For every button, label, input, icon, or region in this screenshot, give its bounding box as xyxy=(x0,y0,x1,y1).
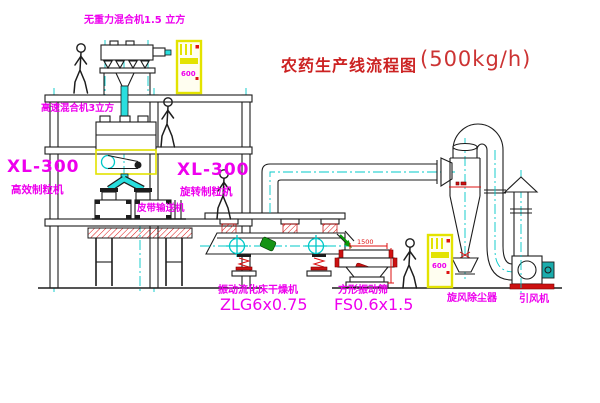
pulley-wheel xyxy=(102,156,115,169)
mixer-nozzle-tip xyxy=(165,50,171,55)
label-granulator-left-name: 高效制粒机 xyxy=(11,185,64,196)
label-granulator-left-model: XL-300 xyxy=(7,159,79,176)
label-sieve-model: FS0.6x1.5 xyxy=(334,297,413,313)
control-cabinet-2 xyxy=(428,235,452,287)
dimension-1500: 1500 xyxy=(357,238,374,246)
label-granulator-right-name: 旋转制粒机 xyxy=(180,187,233,198)
dryer-spring-mount xyxy=(307,254,331,276)
high-speed-mixer xyxy=(96,116,156,180)
exhaust-duct xyxy=(262,158,455,213)
control-cabinet-1 xyxy=(177,41,201,93)
person-figure xyxy=(403,239,417,288)
label-gravity-mixer: 无重力混合机1.5 立方 xyxy=(84,16,185,26)
cyclone-collector-bin xyxy=(452,258,478,272)
cabinet1-display-text: 600 xyxy=(181,70,196,78)
granulator-left-body xyxy=(95,200,131,219)
label-high-speed-mixer: 高速混合机3立方 xyxy=(41,104,114,114)
cyclone-dust-collector xyxy=(449,124,503,280)
diagram-title: 农药生产线流程图 (500kg/h) xyxy=(281,47,531,76)
title-text: 农药生产线流程图 xyxy=(281,47,417,76)
person-figure xyxy=(161,98,175,147)
fan-downpipe xyxy=(484,150,514,280)
fluid-bed-dryer xyxy=(200,213,350,276)
induced-draft-fan xyxy=(510,256,554,289)
mixer-discharge-hopper xyxy=(116,73,134,86)
fan-base xyxy=(510,284,554,289)
stack-rain-cap xyxy=(505,177,537,192)
drive-motor xyxy=(135,162,142,169)
label-granulator-right-model: XL-300 xyxy=(177,162,249,179)
label-belt-conveyor: 皮带输送机 xyxy=(137,204,185,214)
title-capacity: (500kg/h) xyxy=(420,47,531,71)
roof-beam xyxy=(45,95,252,102)
label-fan: 引风机 xyxy=(519,295,549,305)
label-cyclone: 旋风除尘器 xyxy=(447,294,497,304)
fan-motor xyxy=(542,262,554,278)
label-dryer-model: ZLG6x0.75 xyxy=(220,297,308,313)
flow-diagram-canvas: 农药生产线流程图 (500kg/h) 无重力混合机1.5 立方 高速混合机3立方… xyxy=(0,0,600,403)
cabinet2-display-text: 600 xyxy=(432,262,447,270)
person-figure xyxy=(74,44,88,93)
